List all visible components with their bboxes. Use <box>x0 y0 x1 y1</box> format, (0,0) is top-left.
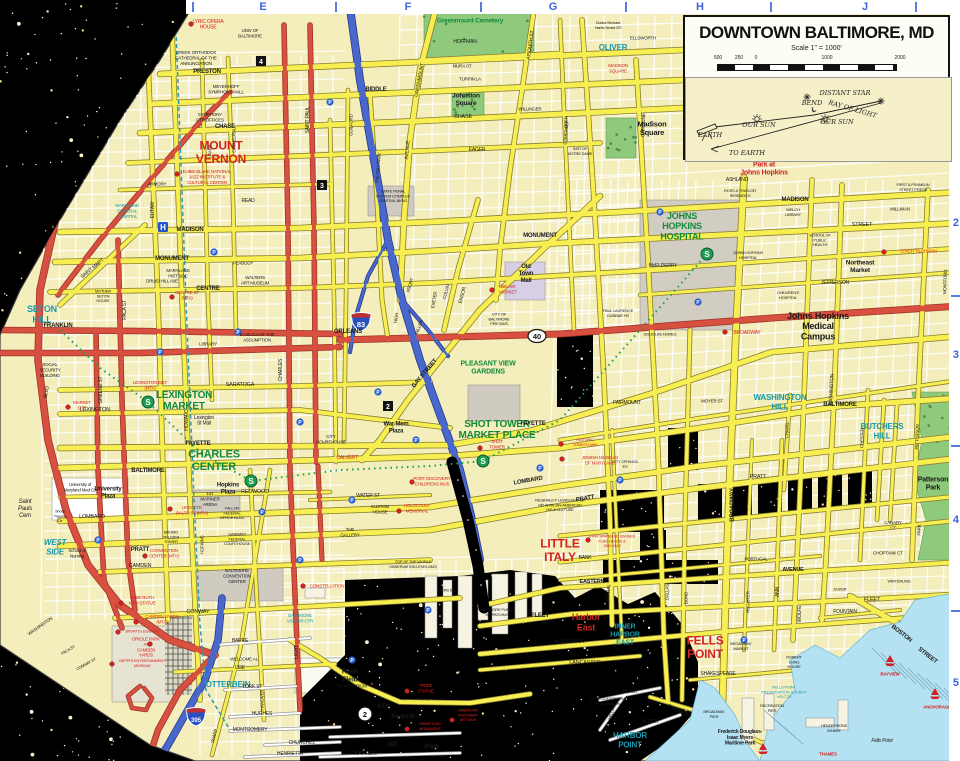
star <box>438 645 439 646</box>
star <box>392 622 393 623</box>
poi-dot <box>405 727 410 732</box>
star <box>372 725 373 726</box>
grid-number-4: 4 <box>953 514 959 526</box>
map-label: ARMORY <box>148 182 167 187</box>
star <box>50 162 51 163</box>
map-label: FAIRMOUNT <box>613 400 641 406</box>
star <box>25 693 27 695</box>
star <box>503 715 504 716</box>
star <box>87 115 88 116</box>
map-label: CALVERT <box>336 455 357 461</box>
poi-dot <box>882 250 887 255</box>
star <box>647 706 648 707</box>
star <box>628 618 629 619</box>
star <box>21 278 22 279</box>
star <box>34 34 35 35</box>
star <box>510 726 511 727</box>
star <box>371 683 372 684</box>
star <box>4 66 5 67</box>
map-label: CAROLINE <box>640 112 647 137</box>
star <box>72 751 73 752</box>
star <box>69 138 73 142</box>
label-earth: EARTH <box>697 131 723 139</box>
star <box>451 691 452 692</box>
star <box>80 5 82 7</box>
star <box>75 28 76 29</box>
star <box>552 711 553 712</box>
map-label: MOYER ST <box>701 399 723 404</box>
star <box>676 679 677 680</box>
star <box>106 127 107 128</box>
star <box>677 623 678 624</box>
map-label: HOWARD <box>184 409 190 431</box>
grid-tick <box>192 2 194 12</box>
star <box>1 309 3 311</box>
star <box>99 107 100 108</box>
map-label: Fells Point <box>871 738 893 744</box>
star <box>64 745 65 746</box>
map-label: BASILICA OF THEASSUMPTION <box>240 332 275 342</box>
star <box>86 20 87 21</box>
star <box>7 52 8 53</box>
star <box>483 637 484 638</box>
map-label: CATHEDRAL <box>232 127 237 153</box>
baltimore-map-page: 83395402432SSSSPPPPPPPPPPPPPPPPPPHMOUNTV… <box>0 0 960 761</box>
star <box>556 687 557 688</box>
map-label: CHARLES <box>278 358 284 381</box>
map-label: GUILFORD <box>349 113 354 136</box>
label-to-earth: TO EARTH <box>729 149 765 157</box>
map-label: PEABODY <box>233 261 254 266</box>
svg-text:3: 3 <box>320 183 324 190</box>
star <box>643 620 644 621</box>
scale-label: Scale 1" = 1000' <box>685 45 948 52</box>
star <box>45 230 46 231</box>
star <box>652 693 653 694</box>
star <box>439 604 440 605</box>
star <box>70 9 71 10</box>
star <box>61 161 62 162</box>
map-label: School ofNursing <box>69 548 87 558</box>
madison-square-park <box>606 118 636 158</box>
map-label: LEE <box>235 665 245 671</box>
star <box>478 686 479 687</box>
star <box>453 638 454 639</box>
svg-text:40: 40 <box>533 332 541 341</box>
map-label: GREEK ORTHODOXCATHEDRAL OF THEANNUNCIATI… <box>175 50 216 66</box>
star <box>57 755 58 756</box>
state-route-shield: 2 <box>358 707 372 721</box>
star <box>368 723 369 724</box>
star <box>360 613 361 614</box>
map-label: WELCHLIBRARY <box>785 207 801 217</box>
star <box>346 658 347 659</box>
map-label: PARK <box>208 144 213 155</box>
star <box>374 696 375 697</box>
map-label: REGISTER <box>746 590 751 612</box>
star <box>26 68 27 69</box>
svg-text:83: 83 <box>357 320 365 329</box>
star <box>111 744 112 745</box>
map-label: SAINT PAUL <box>305 106 311 133</box>
tree <box>927 424 930 427</box>
map-label: PIERS 5 & 6 <box>438 587 459 592</box>
star <box>643 710 644 711</box>
star <box>94 38 95 39</box>
star <box>615 670 616 671</box>
star <box>55 122 56 123</box>
tree <box>618 149 621 152</box>
star <box>587 649 588 650</box>
star <box>35 164 36 165</box>
poi-dot <box>397 509 402 514</box>
grid-letter-E: E <box>259 1 266 13</box>
star <box>433 710 435 712</box>
map-label: CUSTOMHOUSE <box>371 504 390 514</box>
scale-tick-1000: 1000 <box>821 55 832 61</box>
star <box>142 24 143 25</box>
star <box>614 723 615 724</box>
tree <box>609 142 612 145</box>
star <box>6 165 7 166</box>
star <box>77 150 78 151</box>
label-our-sun-lower: OUR SUN <box>820 118 854 126</box>
svg-text:S: S <box>145 398 151 407</box>
map-label: BALTIMOREVISITOR CTR <box>287 613 314 623</box>
map-label: HOPKINS <box>200 535 205 554</box>
map-label: EASTERN <box>580 579 605 585</box>
map-label: CHOPTANK CT <box>873 551 903 556</box>
map-label: MONUMENT <box>523 233 557 239</box>
star <box>16 661 18 663</box>
poi-dot <box>490 288 495 293</box>
tree <box>502 50 505 53</box>
map-title: DOWNTOWN BALTIMORE, MD <box>685 23 948 43</box>
map-label: SPORTS LEGENDS <box>125 628 159 633</box>
star <box>328 720 329 721</box>
star <box>61 151 62 152</box>
star <box>607 724 608 725</box>
star <box>450 757 451 758</box>
star <box>637 677 638 678</box>
map-label: MADISON <box>782 197 809 203</box>
poi-dot <box>170 295 175 300</box>
map-label: FRANKLIN <box>43 323 72 329</box>
star <box>75 181 76 182</box>
star <box>581 699 582 700</box>
tree <box>634 141 637 144</box>
poi-dot <box>450 718 455 723</box>
us-route-shield: 40 <box>528 330 546 343</box>
star <box>425 664 426 665</box>
star <box>568 650 569 651</box>
star <box>439 615 440 616</box>
map-label: CENTRE <box>196 286 220 292</box>
star <box>116 3 117 4</box>
star <box>421 632 422 633</box>
map-label: ARMISTEADMONUMENT <box>419 721 442 731</box>
star <box>640 600 644 604</box>
map-label: PATTERSON <box>914 424 920 449</box>
map-label: CHURCHILL <box>289 740 316 746</box>
map-label: CAMDEN <box>129 563 152 569</box>
map-label: LOMBARD <box>79 514 105 520</box>
scale-tick-2000: 2000 <box>894 55 905 61</box>
star <box>380 718 381 719</box>
star <box>68 716 72 720</box>
map-label: CONVENTIONCENTER (MTA) <box>149 548 179 558</box>
star <box>30 710 34 714</box>
star <box>15 664 16 665</box>
star <box>79 153 83 157</box>
map-label: WATER ST <box>356 493 380 499</box>
star <box>85 58 86 59</box>
map-label: FOUNTAIN <box>833 609 857 615</box>
star <box>649 652 650 653</box>
map-label: CHILDREN'SHOSPITAL <box>777 290 799 300</box>
star <box>518 743 519 744</box>
map-label: SHAKESPEARE <box>700 671 736 677</box>
star <box>120 77 121 78</box>
star <box>172 21 174 23</box>
star <box>31 753 35 757</box>
map-label: AMERICANVISIONARYART MUS <box>458 708 478 723</box>
grid-tick <box>625 2 627 12</box>
star <box>50 59 51 60</box>
star <box>514 710 516 712</box>
poi-dot <box>134 620 139 625</box>
star <box>35 194 36 195</box>
svg-text:H: H <box>160 223 166 232</box>
map-label: OLIVER <box>599 43 628 52</box>
star <box>314 699 315 700</box>
map-label: PRATT <box>750 474 767 480</box>
svg-text:395: 395 <box>191 718 202 724</box>
star <box>399 724 400 725</box>
map-label: BAYVIEW <box>880 672 900 677</box>
tree <box>433 40 436 43</box>
star <box>362 657 363 658</box>
poi-dot <box>723 330 728 335</box>
star <box>427 648 428 649</box>
star <box>411 691 412 692</box>
map-label: TOP OF THE WORLDOBSERVATION LEVEL MUS <box>389 559 437 569</box>
star <box>477 683 478 684</box>
map-label: MONUMENT <box>155 256 189 262</box>
map-label: ORLEANS <box>334 329 362 335</box>
map-label: FLEET <box>531 613 550 619</box>
star <box>46 10 48 12</box>
grid-tick <box>915 2 917 12</box>
star <box>75 185 76 186</box>
grid-letter-G: G <box>549 1 558 13</box>
star <box>419 603 423 607</box>
svg-text:4: 4 <box>259 59 263 66</box>
map-label: DUKER <box>833 586 846 591</box>
star <box>671 679 672 680</box>
grid-tick <box>480 2 482 12</box>
star <box>379 684 380 685</box>
poi-dot <box>405 689 410 694</box>
star <box>387 647 388 648</box>
map-label: EUBIE BLAKE NATIONALJAZZ INSTITUTE &CULT… <box>183 169 232 185</box>
map-label: HUGHES <box>252 711 273 717</box>
star <box>6 55 7 56</box>
star <box>647 667 648 668</box>
map-label: MURA ST <box>453 64 472 69</box>
tree <box>941 417 944 420</box>
map-label: AVENUE <box>782 567 804 573</box>
tree <box>615 133 618 136</box>
map-label: FLEET <box>864 597 881 603</box>
star <box>461 746 462 747</box>
map-label: WELCOME AL <box>230 657 258 662</box>
star <box>510 593 511 594</box>
map-label: FAYETTE <box>185 441 210 447</box>
map-label: BOND <box>684 591 689 604</box>
map-label: YORK ST <box>242 684 263 690</box>
star <box>109 737 113 741</box>
tree <box>632 136 635 139</box>
star <box>482 712 484 714</box>
star <box>553 753 554 754</box>
star <box>552 601 554 603</box>
star <box>419 714 420 715</box>
map-label: BROADWAY <box>730 488 736 522</box>
tree <box>526 19 529 22</box>
map-label: TURPIN LA <box>459 77 481 82</box>
star <box>335 677 336 678</box>
map-label: RashField <box>342 668 358 683</box>
star <box>692 688 694 690</box>
map-label: BARRE <box>232 638 249 644</box>
svg-text:S: S <box>704 250 710 259</box>
map-label: MADISON <box>177 227 204 233</box>
scale-bar <box>717 64 897 71</box>
map-label: BROADWAY <box>733 330 761 336</box>
star <box>365 640 369 644</box>
map-label: MEYERHOFFSYMPHONY HALL <box>208 84 244 94</box>
map-label: FAYETTE <box>520 421 545 427</box>
poi-dot <box>559 442 564 447</box>
star <box>476 629 477 630</box>
star <box>42 720 43 721</box>
gravitational-lensing-diagram: DISTANT STAR BEND RAY OF LIGHT OUR SUN O… <box>685 77 952 162</box>
grid-number-2: 2 <box>953 217 959 229</box>
map-label: PLANETARIUM <box>337 684 367 689</box>
map-label: ANCHORAGE <box>923 705 951 710</box>
grid-number-5: 5 <box>953 677 959 689</box>
star <box>633 682 634 683</box>
star <box>634 615 635 616</box>
star <box>486 638 487 639</box>
map-label: PORT DISCOVERYCHILDRENS MUS <box>413 476 450 486</box>
star <box>21 58 22 59</box>
star <box>82 29 84 31</box>
star <box>525 702 526 703</box>
svg-text:2: 2 <box>386 404 390 411</box>
poi-dot <box>560 457 565 462</box>
star <box>26 131 27 132</box>
star <box>573 708 574 709</box>
star <box>50 729 52 731</box>
star <box>78 754 79 755</box>
star <box>6 72 7 73</box>
star <box>532 733 533 734</box>
map-label: BLOCK <box>642 719 659 725</box>
tree <box>624 138 627 141</box>
map-label: CHASE <box>454 114 472 120</box>
star <box>528 640 529 641</box>
map-label: CHARLESCENTER <box>188 449 240 473</box>
star <box>417 650 418 651</box>
scale-tick-500: 500 <box>714 55 722 61</box>
building-block <box>468 385 520 421</box>
star <box>78 740 79 741</box>
star <box>116 7 117 8</box>
star <box>6 295 7 296</box>
label-our-sun-upper: OUR SUN <box>742 121 776 129</box>
star <box>648 627 650 629</box>
star <box>421 710 422 711</box>
map-label: PACA ST <box>122 300 128 319</box>
map-label: PRATT <box>131 547 150 553</box>
grid-letter-J: J <box>862 1 868 13</box>
poi-dot <box>110 662 115 667</box>
star <box>671 613 672 614</box>
svg-text:2: 2 <box>363 710 367 719</box>
star <box>145 64 146 65</box>
map-label: PORTUGAL <box>744 557 768 562</box>
star <box>108 759 109 760</box>
grid-letter-H: H <box>696 1 704 13</box>
star <box>562 619 563 620</box>
grid-tick <box>951 610 960 612</box>
star <box>120 736 121 737</box>
map-label: BROMOSELTZERTOWER <box>163 530 180 545</box>
map-label: WESTSIDE <box>44 538 68 556</box>
tree <box>923 415 926 418</box>
star <box>52 226 53 227</box>
starfield-patch <box>557 333 593 407</box>
starfield-patch <box>848 469 872 507</box>
map-label: EAGER <box>469 147 486 153</box>
star <box>97 136 98 137</box>
tree <box>607 147 610 150</box>
star <box>127 26 128 27</box>
star <box>686 677 688 679</box>
star <box>491 663 492 664</box>
map-label: ELLSWORTH <box>630 36 656 41</box>
map-label: WINTERLING <box>887 578 910 583</box>
star <box>382 732 383 733</box>
star <box>76 57 77 58</box>
map-label: BIDDLE <box>365 87 386 93</box>
star <box>553 668 554 669</box>
star <box>456 672 458 674</box>
map-label: PARK <box>916 524 921 535</box>
star <box>473 648 474 649</box>
star <box>59 691 60 692</box>
map-label: SOCIALSECURITYBUILDING <box>39 362 60 378</box>
map-label: DRUID HILL AVE <box>146 279 178 284</box>
poi-dot <box>143 554 148 559</box>
star <box>4 293 5 294</box>
map-label: BANK <box>579 555 593 561</box>
star <box>403 607 404 608</box>
star <box>348 619 349 620</box>
map-label: BELAIRMARKET <box>499 284 517 294</box>
